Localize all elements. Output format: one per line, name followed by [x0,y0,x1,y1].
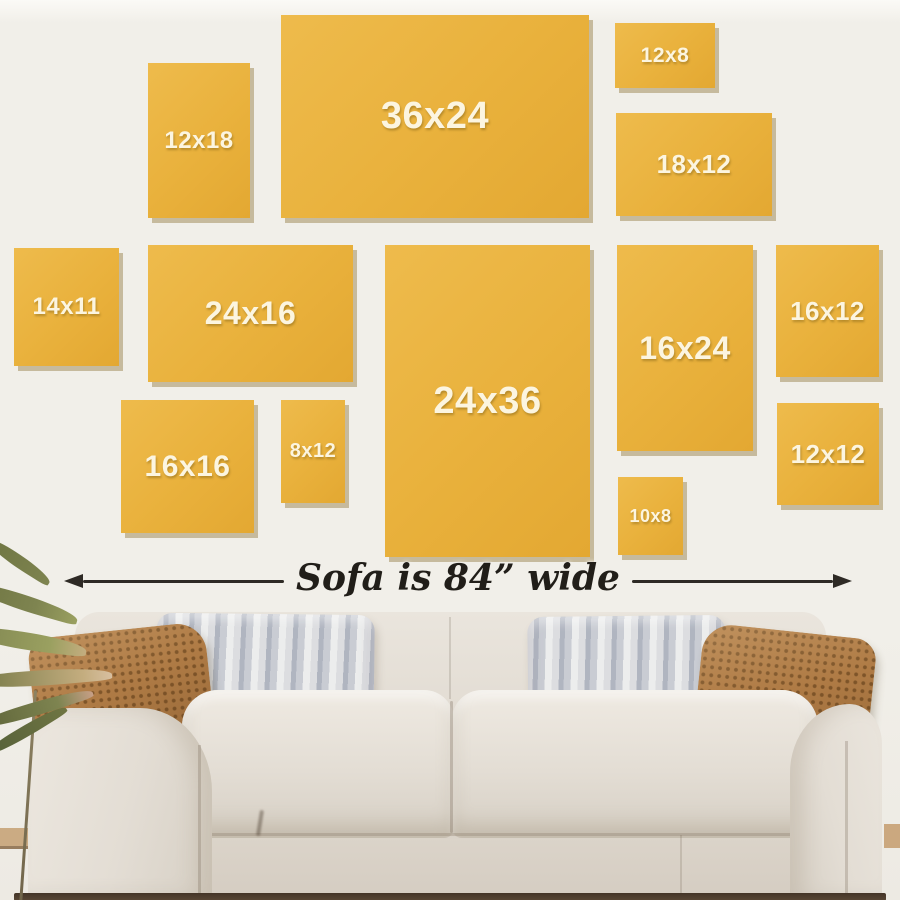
frame-18x12: 18x12 [616,113,772,216]
frame-size-guide-image: 12x18 36x24 12x8 18x12 14x11 24x16 24x36… [0,0,900,900]
frame-12x18: 12x18 [148,63,250,218]
sofa-width-dimension-arrow: Sofa is 84” wide [64,563,852,599]
frame-size-label: 10x8 [629,506,671,527]
dimension-line-right [632,580,833,583]
dimension-line-left [83,580,284,583]
frame-size-label: 16x16 [145,450,231,484]
frame-16x16: 16x16 [121,400,254,533]
frame-size-label: 24x36 [433,380,541,423]
arrow-right-icon [833,574,852,588]
sofa-arm-left [28,708,212,898]
frame-8x12: 8x12 [281,400,345,503]
sofa-skirt-seam-right [680,835,682,893]
sofa-floor-shadow [14,893,886,900]
seat-cushion-seam [450,701,453,833]
frame-size-label: 24x16 [205,295,296,332]
frame-size-label: 36x24 [381,95,489,138]
frame-12x8: 12x8 [615,23,715,88]
frame-size-label: 16x12 [790,296,865,327]
seat-cushion-right [452,690,818,838]
arm-seam-right [845,741,848,895]
seat-cushion-left [182,690,454,838]
arrow-left-icon [64,574,83,588]
frame-24x36: 24x36 [385,245,590,557]
frame-size-label: 18x12 [657,149,732,180]
frame-size-label: 8x12 [290,440,337,463]
frame-16x12: 16x12 [776,245,879,377]
frame-size-label: 12x8 [641,44,690,68]
sofa-width-label: Sofa is 84” wide [284,560,632,596]
sofa-arm-right [790,704,882,898]
frame-10x8: 10x8 [618,477,683,555]
frame-24x16: 24x16 [148,245,353,382]
sofa [0,605,900,900]
frame-36x24: 36x24 [281,15,589,218]
frame-14x11: 14x11 [14,248,119,366]
plant-leaf [0,536,54,586]
arm-seam-left [198,745,201,895]
frame-size-label: 12x12 [791,439,866,470]
frame-size-label: 12x18 [164,127,233,155]
sofa-back-seam [449,617,451,699]
frame-size-label: 16x24 [639,330,730,367]
frame-size-label: 14x11 [33,293,101,321]
frame-12x12: 12x12 [777,403,879,505]
frame-16x24: 16x24 [617,245,753,451]
